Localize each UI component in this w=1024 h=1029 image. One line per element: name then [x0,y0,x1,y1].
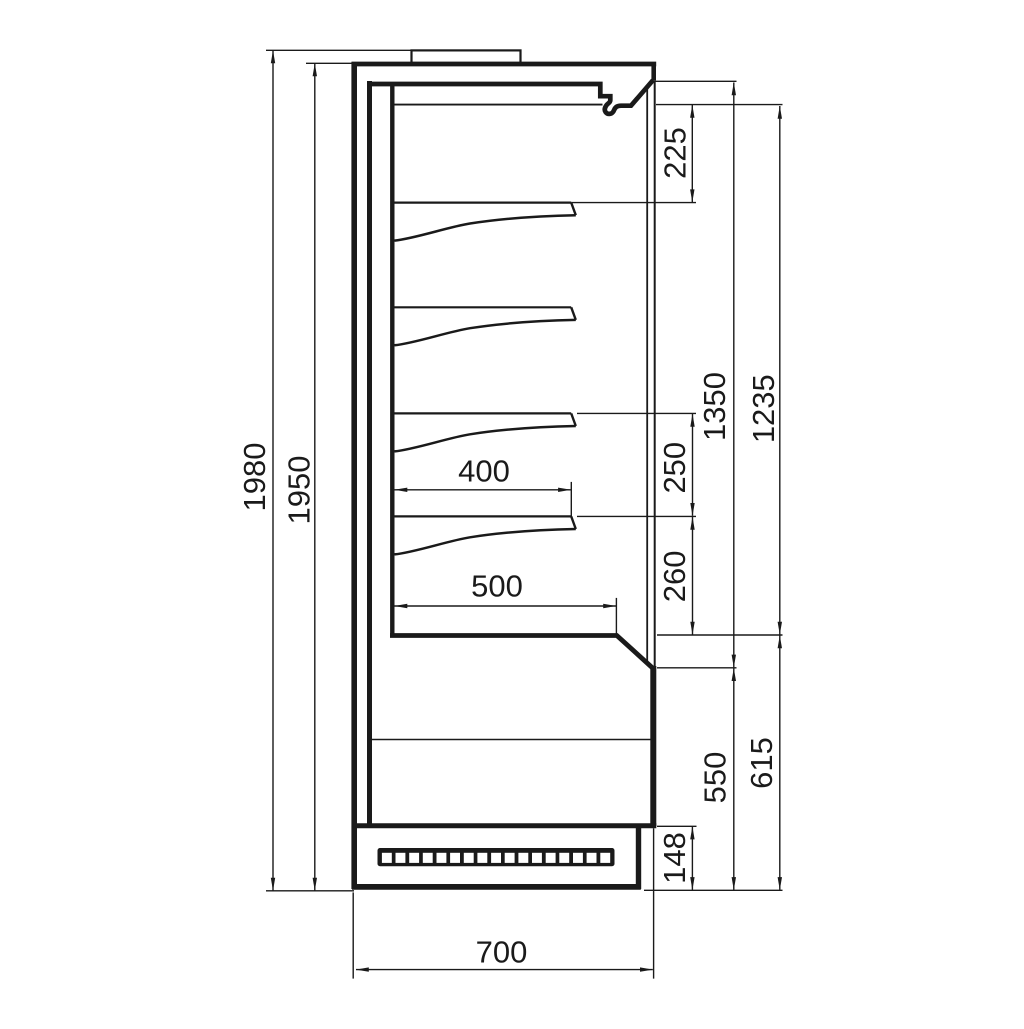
svg-text:225: 225 [658,127,693,179]
svg-text:550: 550 [698,752,733,804]
svg-text:260: 260 [657,551,692,603]
svg-text:400: 400 [458,454,510,489]
svg-text:148: 148 [657,832,692,884]
svg-text:1950: 1950 [282,456,317,525]
svg-text:500: 500 [471,568,523,603]
svg-text:250: 250 [657,442,692,494]
svg-text:1980: 1980 [237,443,272,512]
svg-text:700: 700 [476,935,528,970]
svg-text:615: 615 [744,737,779,789]
svg-text:1235: 1235 [746,374,781,443]
svg-text:1350: 1350 [697,372,732,441]
